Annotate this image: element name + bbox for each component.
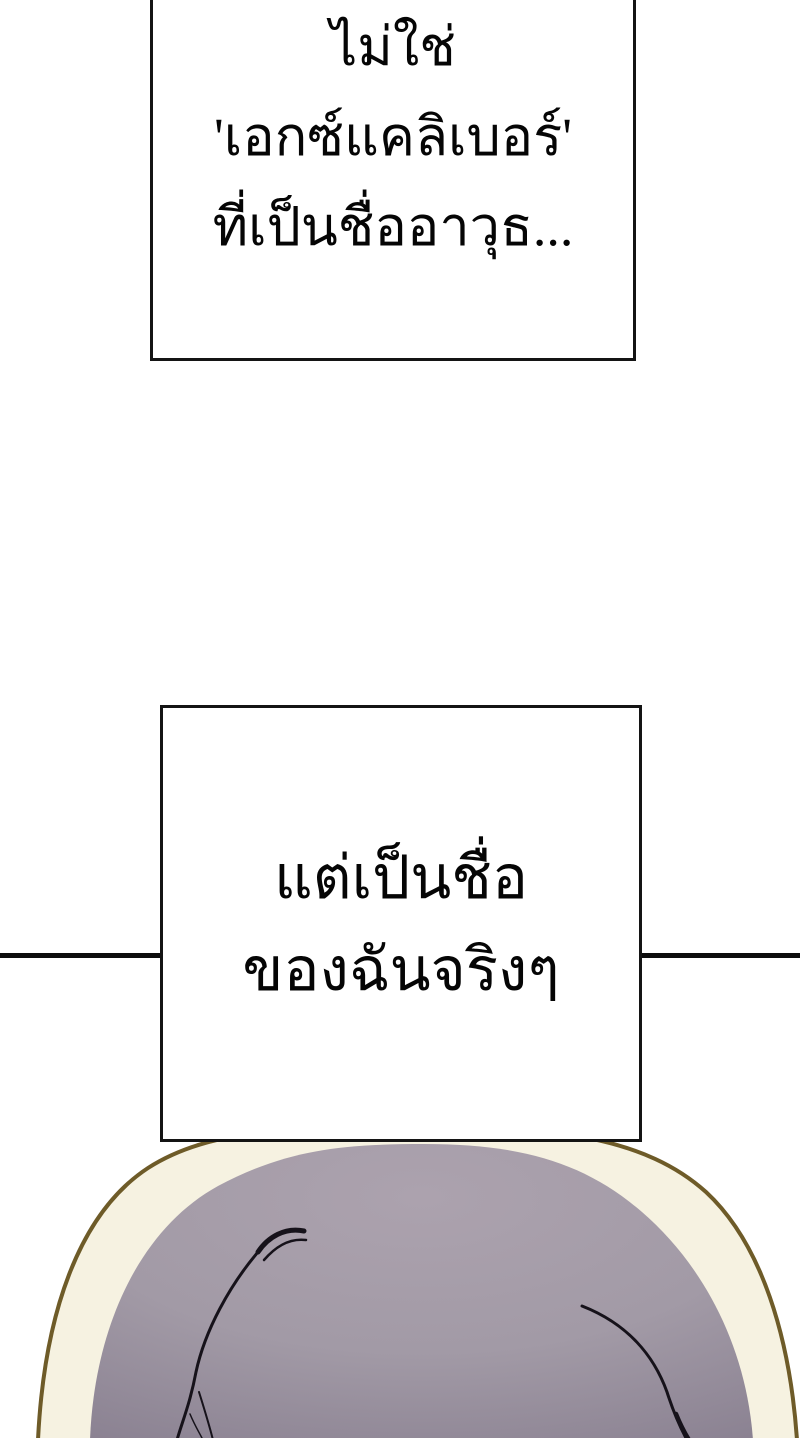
speech-text-line: แต่เป็นชื่อ <box>274 832 528 924</box>
speech-text-line: ไม่ใช่ <box>330 2 456 92</box>
speech-text-line: ของฉันจริงๆ <box>242 924 559 1016</box>
speech-box-middle: แต่เป็นชื่อ ของฉันจริงๆ <box>160 705 642 1142</box>
character-head-artwork <box>0 1090 800 1438</box>
speech-text-line: 'เอกซ์แคลิเบอร์' <box>214 92 572 182</box>
speech-text-line: ที่เป็นชื่ออาวุธ... <box>213 182 574 272</box>
comic-page: ไม่ใช่ 'เอกซ์แคลิเบอร์' ที่เป็นชื่ออาวุธ… <box>0 0 800 1438</box>
speech-box-top: ไม่ใช่ 'เอกซ์แคลิเบอร์' ที่เป็นชื่ออาวุธ… <box>150 0 636 361</box>
